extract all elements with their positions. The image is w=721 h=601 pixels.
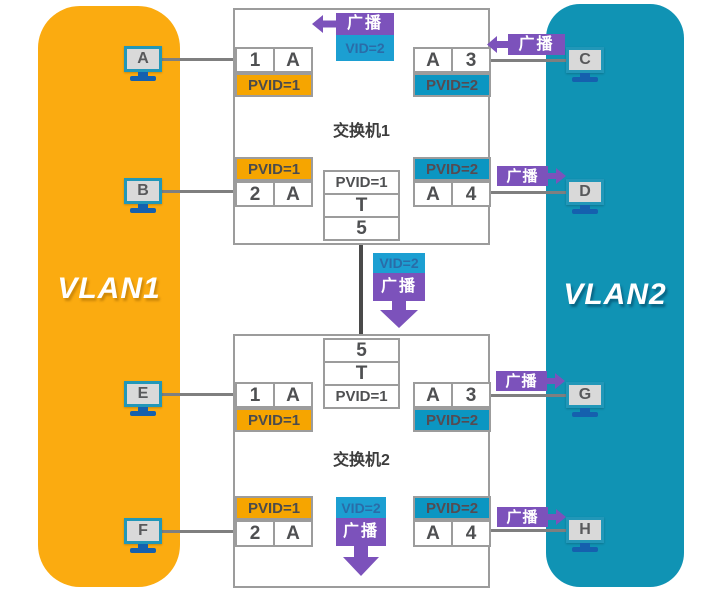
host-a-label: A: [137, 51, 149, 67]
broadcast-label: 广播: [373, 273, 425, 301]
arrow-right-icon: [548, 509, 566, 525]
sw1-port4-mode: A: [413, 181, 453, 207]
host-h: H: [563, 517, 607, 552]
sw1-port3-cells: A 3: [413, 47, 491, 73]
host-b-label: B: [137, 183, 149, 199]
link-host-e: [155, 393, 237, 396]
host-f-label: F: [138, 523, 148, 539]
host-e: E: [121, 381, 165, 416]
vlan2-zone: VLAN2: [546, 4, 684, 587]
broadcast-tag-host-d: 广播: [497, 166, 566, 186]
link-host-d: [489, 191, 569, 194]
sw1-port1-mode: A: [273, 47, 313, 73]
vlan1-zone: VLAN1: [38, 6, 180, 587]
broadcast-tag-sw1-top: 广播: [312, 13, 394, 35]
sw2-port4-cells: A 4: [413, 520, 491, 547]
link-host-a: [155, 58, 237, 61]
broadcast-tag-sw2-bottom: VID=2 广播: [336, 497, 386, 576]
sw2-trunk-pvid: PVID=1: [323, 384, 400, 409]
arrow-right-icon: [547, 373, 565, 389]
broadcast-label: 广播: [336, 518, 386, 546]
host-g: G: [563, 382, 607, 417]
broadcast-label: 广播: [336, 13, 394, 35]
host-a: A: [121, 46, 165, 81]
sw1-trunk-pvid: PVID=1: [323, 170, 400, 195]
vlan1-label: VLAN1: [38, 272, 180, 306]
link-host-g: [489, 394, 569, 397]
broadcast-label: 广播: [508, 34, 565, 55]
sw2-port1-cells: 1 A: [235, 382, 313, 408]
sw2-port2-mode: A: [273, 520, 313, 547]
link-host-h: [489, 529, 569, 532]
vid-tag-sw1-top: VID=2: [336, 35, 394, 61]
vid-tag: VID=2: [336, 497, 386, 518]
switch2-title: 交换机2: [233, 446, 490, 470]
sw1-trunk-number: 5: [323, 216, 400, 241]
sw2-port1-number: 1: [235, 382, 275, 408]
sw2-trunk-port: 5 T PVID=1: [323, 338, 400, 409]
sw2-port3-cells: A 3: [413, 382, 491, 408]
link-host-b: [155, 190, 237, 193]
sw2-port1-pvid: PVID=1: [235, 408, 313, 432]
sw2-port4-pvid: PVID=2: [413, 496, 491, 520]
broadcast-tag-trunk: VID=2 广播: [373, 253, 425, 328]
computer-icon: F: [124, 518, 162, 544]
host-g-label: G: [579, 387, 591, 403]
broadcast-tag-host-h: 广播: [497, 507, 566, 527]
link-host-c: [489, 59, 569, 62]
sw1-port2-cells: 2 A: [235, 181, 313, 207]
host-d-label: D: [579, 184, 591, 200]
host-h-label: H: [579, 522, 591, 538]
sw2-port4-mode: A: [413, 520, 453, 547]
computer-icon: B: [124, 178, 162, 204]
arrow-right-icon: [548, 168, 566, 184]
trunk-link: [359, 245, 363, 334]
host-d: D: [563, 179, 607, 214]
sw1-port4-number: 4: [451, 181, 491, 207]
sw2-port2-cells: 2 A: [235, 520, 313, 547]
host-f: F: [121, 518, 165, 553]
sw2-port1-mode: A: [273, 382, 313, 408]
sw2-trunk-number: 5: [323, 338, 400, 363]
arrow-down-icon: [343, 546, 379, 576]
sw2-port3-mode: A: [413, 382, 453, 408]
sw2-port3-number: 3: [451, 382, 491, 408]
computer-icon: D: [566, 179, 604, 205]
sw1-trunk-mode: T: [323, 193, 400, 218]
sw1-port4-pvid: PVID=2: [413, 157, 491, 181]
computer-icon: H: [566, 517, 604, 543]
vlan-diagram: VLAN1 VLAN2 交换机1 1 A PVID=1 A 3 PVID=2 P…: [0, 0, 721, 601]
arrow-left-icon: [312, 15, 336, 33]
computer-icon: E: [124, 381, 162, 407]
sw1-port3-number: 3: [451, 47, 491, 73]
switch1-title: 交换机1: [233, 117, 490, 141]
sw1-port2-number: 2: [235, 181, 275, 207]
sw1-port1-pvid: PVID=1: [235, 73, 313, 97]
host-c-label: C: [579, 52, 591, 68]
sw1-trunk-port: PVID=1 T 5: [323, 170, 400, 241]
vid-tag: VID=2: [373, 253, 425, 273]
sw1-port2-pvid: PVID=1: [235, 157, 313, 181]
broadcast-label: 广播: [497, 166, 548, 186]
computer-icon: G: [566, 382, 604, 408]
broadcast-label: 广播: [496, 371, 547, 391]
arrow-left-icon: [487, 36, 508, 53]
computer-icon: C: [566, 47, 604, 73]
sw2-port3-pvid: PVID=2: [413, 408, 491, 432]
link-host-f: [155, 530, 237, 533]
computer-icon: A: [124, 46, 162, 72]
vlan2-label: VLAN2: [546, 278, 684, 312]
host-b: B: [121, 178, 165, 213]
broadcast-tag-host-c: 广播: [487, 34, 565, 55]
arrow-down-icon: [380, 301, 418, 328]
sw1-port4-cells: A 4: [413, 181, 491, 207]
sw2-port4-number: 4: [451, 520, 491, 547]
sw1-port1-number: 1: [235, 47, 275, 73]
broadcast-label: 广播: [497, 507, 548, 527]
sw2-port2-pvid: PVID=1: [235, 496, 313, 520]
host-e-label: E: [138, 386, 149, 402]
sw1-port3-pvid: PVID=2: [413, 73, 491, 97]
host-c: C: [563, 47, 607, 82]
sw1-port2-mode: A: [273, 181, 313, 207]
sw2-trunk-mode: T: [323, 361, 400, 386]
sw1-port3-mode: A: [413, 47, 453, 73]
sw1-port1-cells: 1 A: [235, 47, 313, 73]
sw2-port2-number: 2: [235, 520, 275, 547]
broadcast-tag-host-g: 广播: [496, 371, 565, 391]
